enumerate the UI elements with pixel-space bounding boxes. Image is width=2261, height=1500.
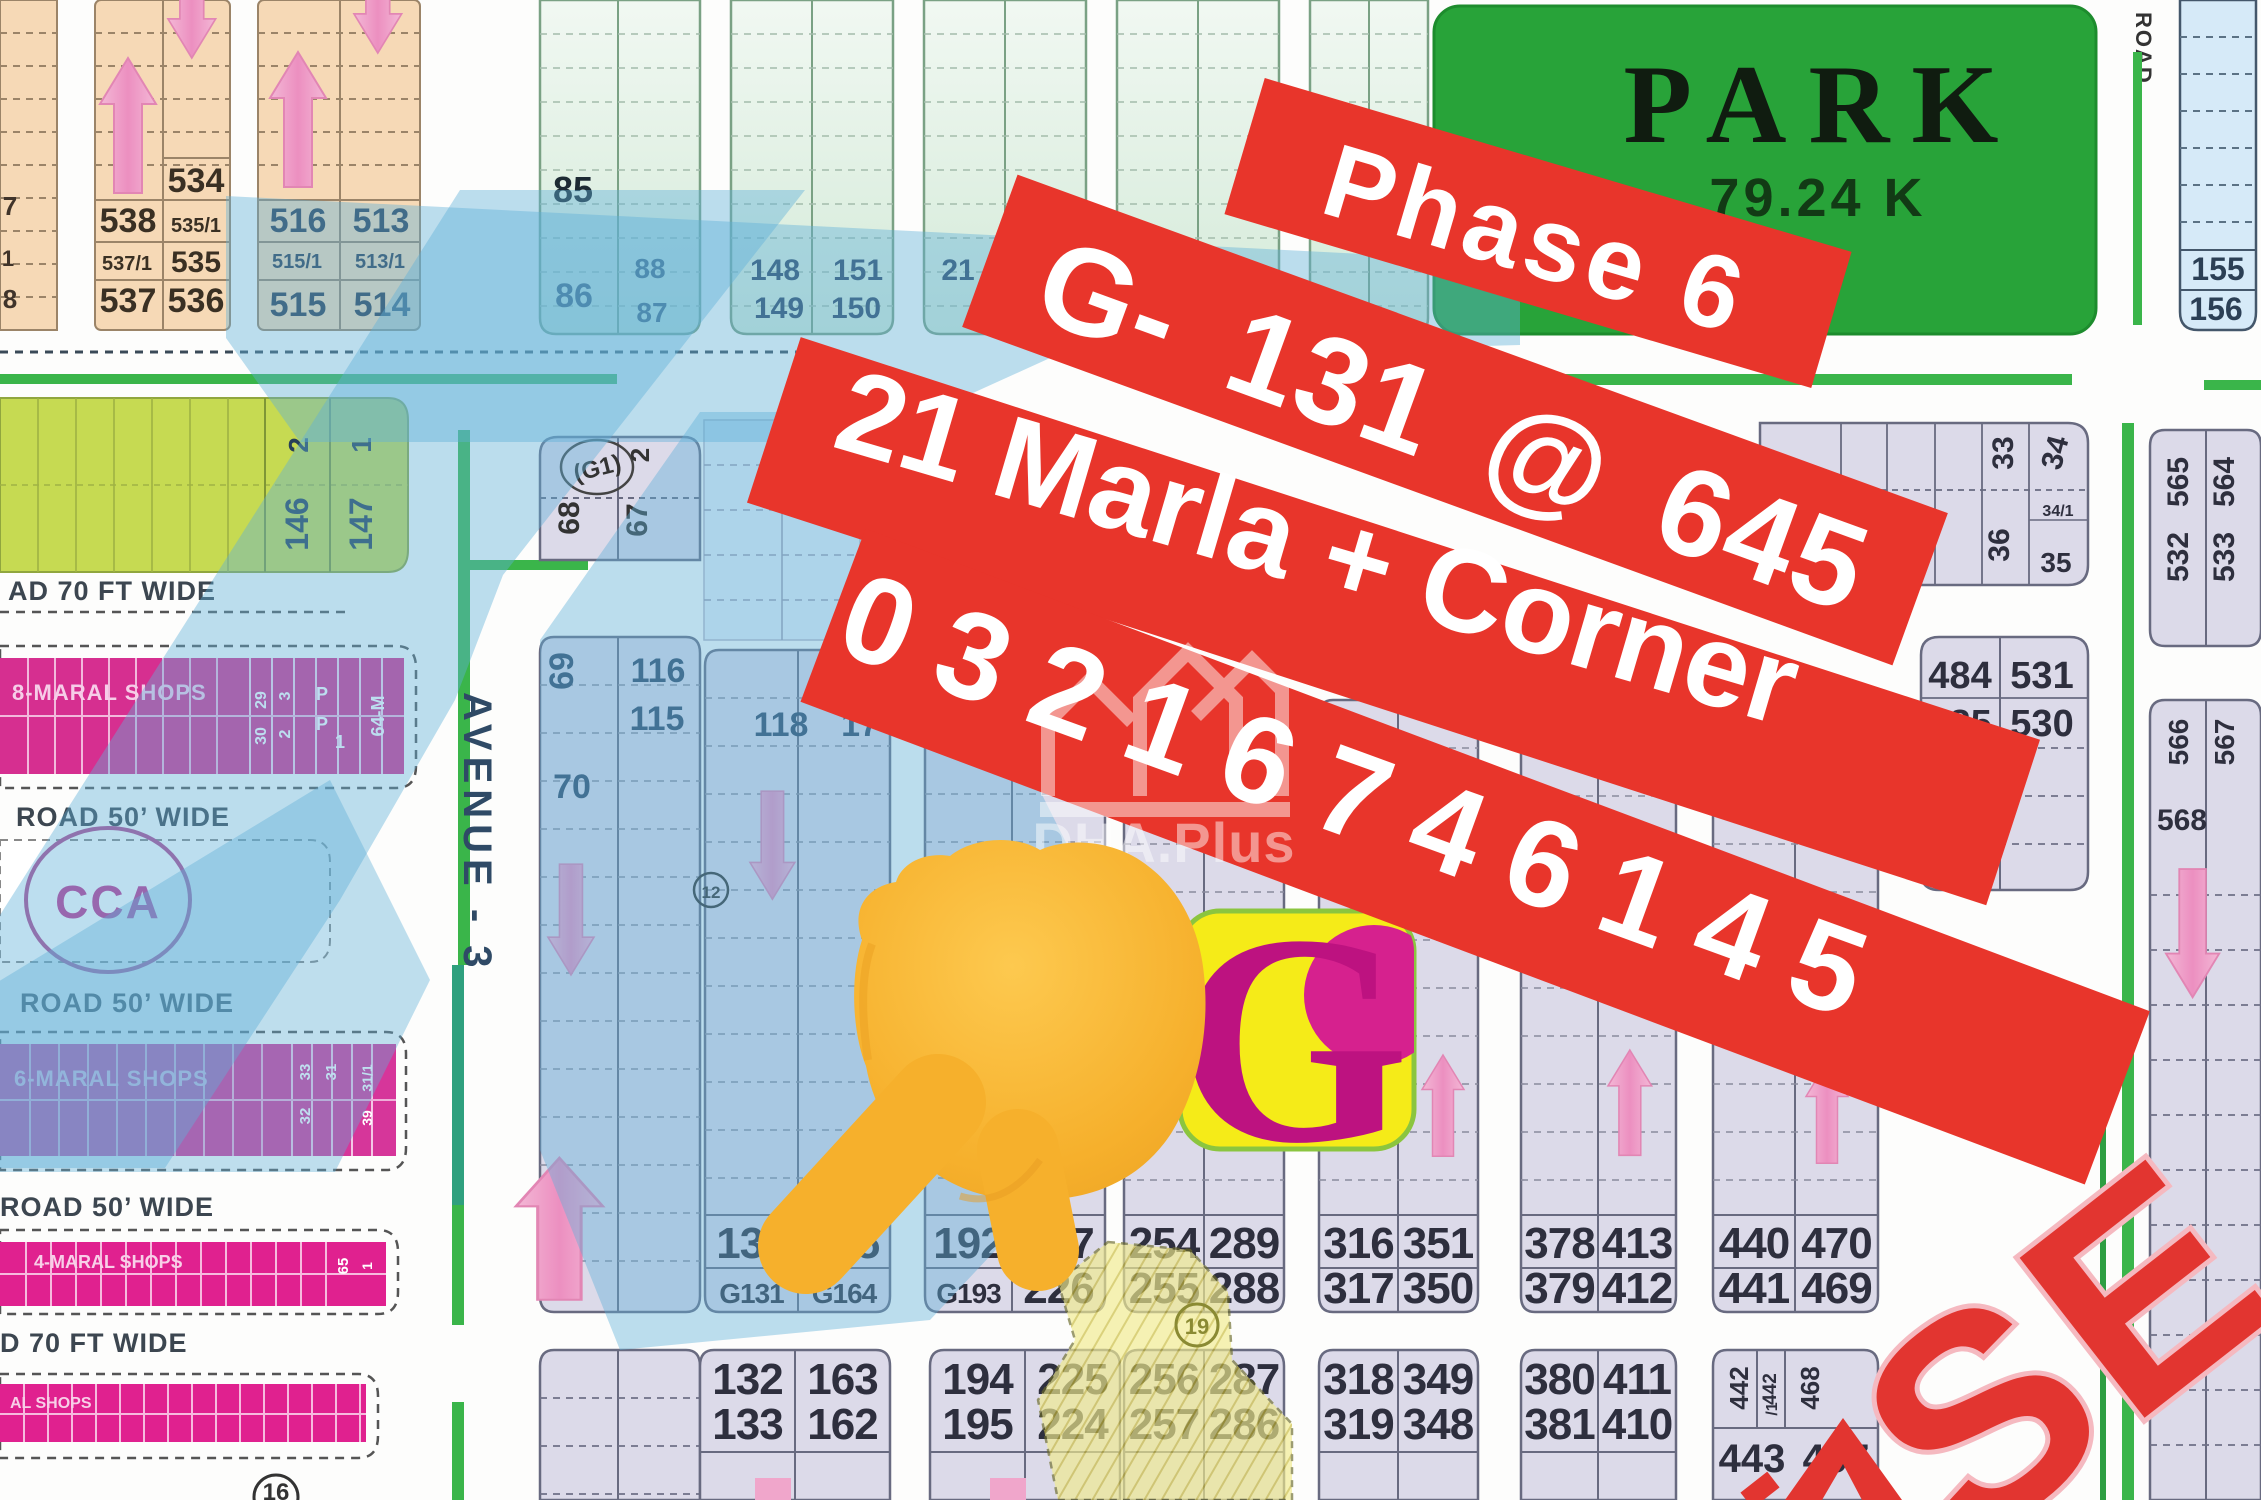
svg-text:537/1: 537/1 [102,253,152,275]
svg-text:AD 70 FT WIDE: AD 70 FT WIDE [8,576,216,606]
svg-text:319: 319 [1323,1400,1393,1449]
svg-text:484: 484 [1928,655,1991,697]
svg-text:567: 567 [2209,719,2240,766]
svg-text:532: 532 [2162,532,2195,582]
svg-text:381: 381 [1524,1400,1595,1449]
svg-text:65: 65 [335,1258,352,1275]
svg-text:442: 442 [1760,1373,1781,1405]
svg-text:535: 535 [171,246,221,279]
svg-text:413: 413 [1602,1219,1672,1268]
svg-text:33: 33 [1987,436,2020,469]
svg-text:68: 68 [553,501,586,534]
svg-text:411: 411 [1603,1355,1672,1404]
svg-text:155: 155 [2191,251,2244,287]
svg-text:16: 16 [263,1479,290,1500]
svg-text:468: 468 [1795,1366,1825,1409]
svg-text:441: 441 [1719,1264,1790,1313]
svg-text:380: 380 [1524,1355,1594,1404]
svg-text:AVENUE - 3: AVENUE - 3 [455,692,499,974]
svg-text:443: 443 [1719,1437,1786,1481]
svg-text:G: G [1176,873,1409,1205]
svg-text:349: 349 [1403,1355,1473,1404]
svg-text:536: 536 [168,282,225,320]
svg-text:351: 351 [1403,1219,1474,1268]
svg-text:35: 35 [2040,547,2071,578]
svg-text:534: 534 [168,162,225,200]
svg-text:410: 410 [1602,1400,1672,1449]
svg-text:564: 564 [2208,457,2241,507]
svg-text:4-MARAL SHOPS: 4-MARAL SHOPS [34,1252,183,1272]
svg-text:79.24 K: 79.24 K [1709,168,1926,228]
svg-text:378: 378 [1524,1219,1595,1268]
svg-text:156: 156 [2189,291,2242,327]
svg-text:565: 565 [2162,457,2195,507]
svg-text:1: 1 [2,246,14,271]
svg-text:470: 470 [1801,1219,1871,1268]
svg-text:ROAD 50’ WIDE: ROAD 50’ WIDE [0,1192,214,1222]
svg-text:537: 537 [100,282,157,320]
svg-text:348: 348 [1403,1400,1474,1449]
svg-text:568: 568 [2157,804,2207,837]
svg-text:442: 442 [1724,1366,1754,1409]
svg-text:440: 440 [1719,1219,1789,1268]
svg-text:412: 412 [1602,1264,1672,1313]
svg-text:8: 8 [3,284,17,314]
svg-text:566: 566 [2163,719,2194,766]
svg-text:36: 36 [1983,528,2016,561]
svg-text:34/1: 34/1 [2042,503,2073,520]
svg-text:194: 194 [942,1355,1014,1404]
svg-text:2: 2 [625,448,655,462]
svg-text:195: 195 [942,1400,1013,1449]
svg-text:289: 289 [1209,1219,1279,1268]
svg-text:133: 133 [712,1400,782,1449]
svg-text:162: 162 [807,1400,877,1449]
svg-text:379: 379 [1524,1264,1594,1313]
svg-text:318: 318 [1323,1355,1394,1404]
svg-text:D 70 FT WIDE: D 70 FT WIDE [0,1328,188,1358]
svg-text:317: 317 [1323,1264,1393,1313]
svg-text:1: 1 [359,1262,375,1270]
svg-text:7: 7 [3,191,17,221]
svg-text:19: 19 [1185,1314,1209,1339]
svg-text:132: 132 [712,1355,782,1404]
svg-text:531: 531 [2010,655,2073,697]
svg-text:533: 533 [2208,532,2241,582]
svg-text:AL SHOPS: AL SHOPS [10,1395,92,1412]
svg-text:163: 163 [807,1355,877,1404]
svg-text:538: 538 [100,202,157,240]
svg-text:PARK: PARK [1624,43,2021,167]
svg-text:535/1: 535/1 [171,215,221,237]
svg-text:350: 350 [1403,1264,1473,1313]
svg-text:316: 316 [1323,1219,1393,1268]
svg-text:/1: /1 [1764,1402,1781,1415]
